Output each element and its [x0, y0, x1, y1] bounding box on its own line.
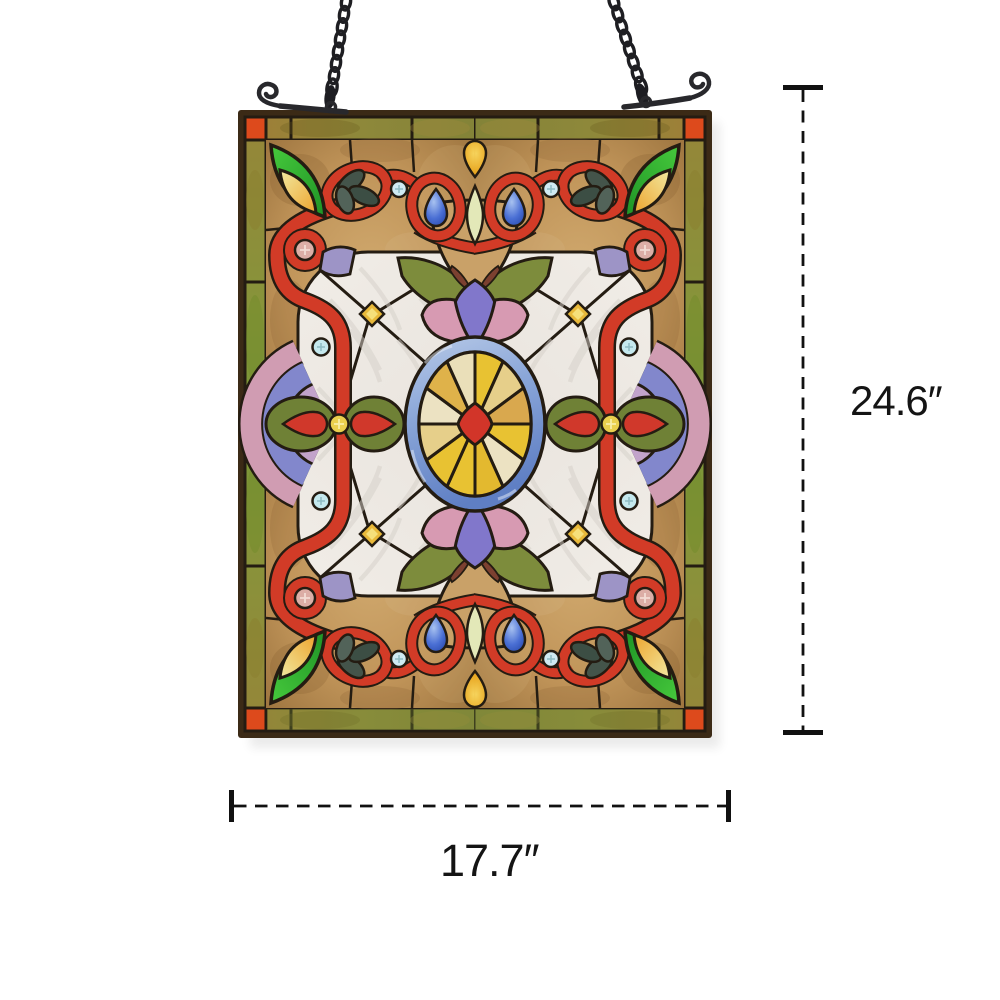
- svg-text:17.7″: 17.7″: [440, 835, 540, 886]
- svg-text:24.6″: 24.6″: [850, 377, 943, 424]
